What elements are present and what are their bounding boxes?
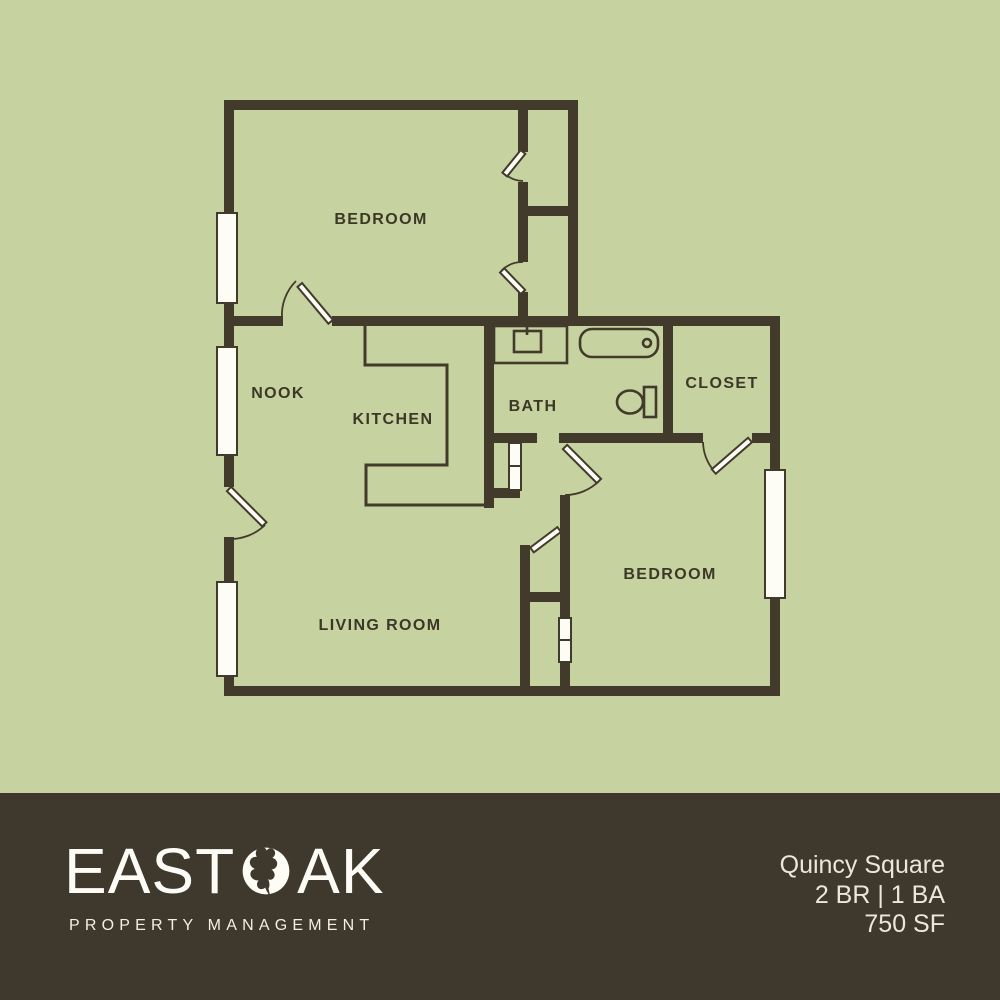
floorplan-canvas: BEDROOM NOOK KITCHEN BATH CLOSET BEDROOM… xyxy=(0,0,1000,793)
listing-area: 750 SF xyxy=(780,910,945,940)
window xyxy=(765,470,785,598)
walls xyxy=(224,100,780,696)
window xyxy=(217,213,237,303)
room-label-closet: CLOSET xyxy=(685,375,758,392)
room-label-kitchen: KITCHEN xyxy=(353,411,434,428)
room-label-bedroom-lower: BEDROOM xyxy=(623,566,716,583)
brand-name-right: AK xyxy=(297,839,384,903)
closet-bifold-door xyxy=(559,618,571,640)
oak-leaf-icon xyxy=(238,843,294,899)
footer-band: EAST AK PROPERTY MANAGEMENT Quincy Squar… xyxy=(0,793,1000,1000)
door-swing xyxy=(282,281,333,324)
room-label-bedroom-upper: BEDROOM xyxy=(334,211,427,228)
window xyxy=(217,347,237,455)
door-swing xyxy=(502,150,525,181)
door-swing xyxy=(500,262,525,294)
listing-name: Quincy Square xyxy=(780,851,945,881)
room-label-living-room: LIVING ROOM xyxy=(319,617,442,634)
linen-door xyxy=(509,443,521,466)
door-swing xyxy=(227,487,267,539)
linen-door xyxy=(509,466,521,490)
toilet-tank xyxy=(644,387,656,417)
room-label-bath: BATH xyxy=(509,398,558,415)
bathtub-drain xyxy=(643,339,651,347)
brand-name-left: EAST xyxy=(64,839,235,903)
toilet-bowl xyxy=(617,391,643,414)
flyer-page: BEDROOM NOOK KITCHEN BATH CLOSET BEDROOM… xyxy=(0,0,1000,1000)
bathtub xyxy=(580,329,658,357)
door-swing xyxy=(703,438,752,474)
room-label-nook: NOOK xyxy=(251,385,305,402)
window xyxy=(217,582,237,676)
closet-bifold-door xyxy=(559,640,571,662)
brand-tagline: PROPERTY MANAGEMENT xyxy=(69,917,374,935)
listing-info: Quincy Square 2 BR | 1 BA 750 SF xyxy=(780,851,945,940)
door-swing xyxy=(563,445,601,495)
listing-config: 2 BR | 1 BA xyxy=(780,881,945,911)
brand-logo: EAST AK xyxy=(64,839,385,903)
